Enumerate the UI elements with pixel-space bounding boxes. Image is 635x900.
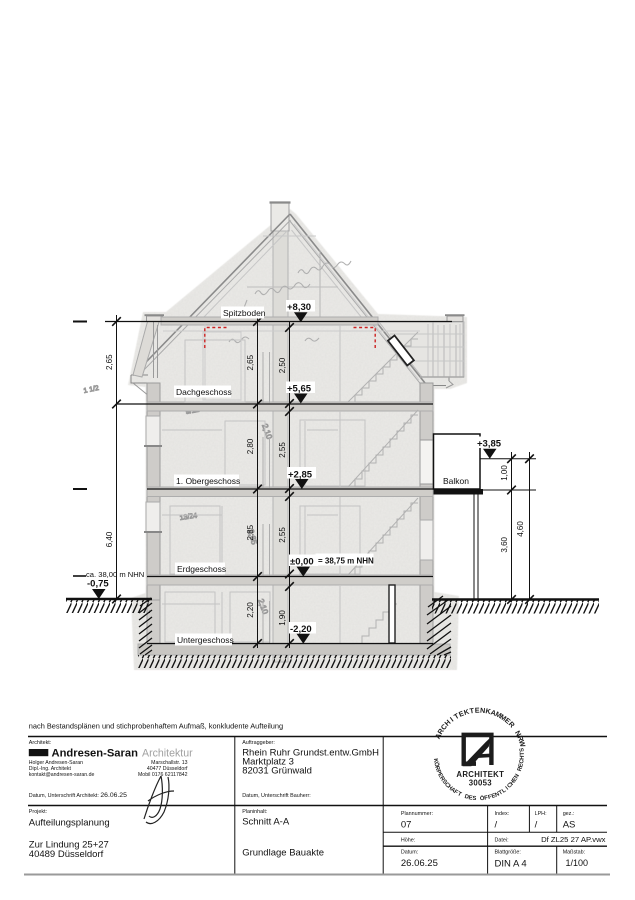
svg-text:Datum, Unterschrift Architekt:: Datum, Unterschrift Architekt: 26.06.25 — [29, 792, 127, 799]
svg-text:nach Bestandsplänen und stichp: nach Bestandsplänen und stichprobenhafte… — [29, 722, 283, 731]
svg-text:Mobil 0176 62117842: Mobil 0176 62117842 — [138, 772, 188, 778]
svg-text:Df ZL25 27 AP.vwx: Df ZL25 27 AP.vwx — [541, 835, 606, 844]
svg-text:±0,00: ±0,00 — [290, 557, 314, 568]
svg-text:2,50: 2,50 — [278, 357, 287, 373]
svg-text:Plannummer:: Plannummer: — [401, 811, 433, 817]
svg-text:1,90: 1,90 — [278, 610, 287, 626]
svg-text:2,20: 2,20 — [246, 602, 255, 618]
svg-text:-0,75: -0,75 — [87, 579, 109, 590]
svg-text:Architektur: Architektur — [142, 748, 193, 760]
svg-text:Architekt:: Architekt: — [29, 740, 51, 746]
svg-text:Projekt:: Projekt: — [29, 809, 47, 815]
svg-text:Spitzboden: Spitzboden — [223, 308, 266, 318]
svg-text:2,80: 2,80 — [246, 438, 255, 454]
svg-text:+2,85: +2,85 — [288, 470, 313, 481]
svg-text:Datum, Unterschrift Bauherr:: Datum, Unterschrift Bauherr: — [242, 793, 311, 799]
svg-text:6,40: 6,40 — [105, 531, 114, 547]
svg-text:+8,30: +8,30 — [287, 302, 311, 313]
svg-text:S: S — [472, 796, 477, 802]
svg-text:AS: AS — [563, 820, 576, 831]
svg-text:Maßstab:: Maßstab: — [563, 850, 585, 856]
svg-text:Planinhalt:: Planinhalt: — [242, 809, 267, 815]
svg-text:Balkon: Balkon — [443, 476, 469, 486]
svg-text:DIN A 4: DIN A 4 — [495, 858, 527, 869]
svg-text:/: / — [495, 820, 498, 831]
svg-text:30053: 30053 — [469, 778, 493, 787]
svg-text:1/100: 1/100 — [566, 858, 589, 868]
svg-text:-2,20: -2,20 — [290, 624, 312, 635]
svg-text:Erdgeschoss: Erdgeschoss — [177, 564, 226, 574]
svg-text:= 38,75 m NHN: = 38,75 m NHN — [318, 557, 374, 566]
svg-text:Schnitt A-A: Schnitt A-A — [242, 817, 290, 828]
svg-text:07: 07 — [401, 820, 412, 831]
svg-text:4,60: 4,60 — [516, 521, 525, 537]
svg-text:3,60: 3,60 — [500, 536, 509, 552]
svg-text:1 1/2: 1 1/2 — [83, 385, 100, 395]
svg-text:2,65: 2,65 — [105, 354, 114, 370]
svg-text:Datum:: Datum: — [401, 850, 418, 856]
svg-text:ca. 38,00 m NHN: ca. 38,00 m NHN — [86, 570, 144, 579]
svg-text:Datei:: Datei: — [495, 838, 509, 844]
svg-text:LPH:: LPH: — [535, 811, 547, 817]
svg-text:Aufteilungsplanung: Aufteilungsplanung — [29, 818, 110, 829]
svg-text:kontakt@andresen-saran.de: kontakt@andresen-saran.de — [29, 772, 95, 778]
svg-text:26.06.25: 26.06.25 — [401, 858, 438, 869]
svg-text:Andresen-Saran: Andresen-Saran — [52, 748, 139, 760]
svg-text:82031 Grünwald: 82031 Grünwald — [242, 765, 312, 776]
svg-text:Untergeschoss: Untergeschoss — [177, 635, 234, 645]
svg-text:W: W — [517, 739, 528, 748]
svg-text:gez.:: gez.: — [563, 811, 575, 817]
svg-text:40489 Düsseldorf: 40489 Düsseldorf — [29, 849, 104, 860]
svg-text:Höhe:: Höhe: — [401, 838, 415, 844]
svg-text:1. Obergeschoss: 1. Obergeschoss — [176, 476, 240, 486]
svg-text:2,55: 2,55 — [278, 442, 287, 458]
svg-text:2,55: 2,55 — [278, 527, 287, 543]
svg-text:Blattgröße:: Blattgröße: — [495, 850, 521, 856]
svg-text:Grundlage Bauakte: Grundlage Bauakte — [242, 848, 324, 859]
svg-text:Dachgeschoss: Dachgeschoss — [176, 387, 232, 397]
svg-text:2,65: 2,65 — [246, 354, 255, 370]
svg-text:+3,85: +3,85 — [477, 439, 502, 450]
svg-text:+5,65: +5,65 — [287, 384, 312, 395]
svg-text:Auftraggeber:: Auftraggeber: — [242, 740, 275, 746]
svg-text:S: S — [519, 747, 525, 752]
svg-text:2,85: 2,85 — [246, 524, 255, 540]
svg-text:Index:: Index: — [495, 811, 510, 817]
svg-text:1,00: 1,00 — [500, 465, 509, 481]
svg-text:/: / — [535, 820, 538, 831]
